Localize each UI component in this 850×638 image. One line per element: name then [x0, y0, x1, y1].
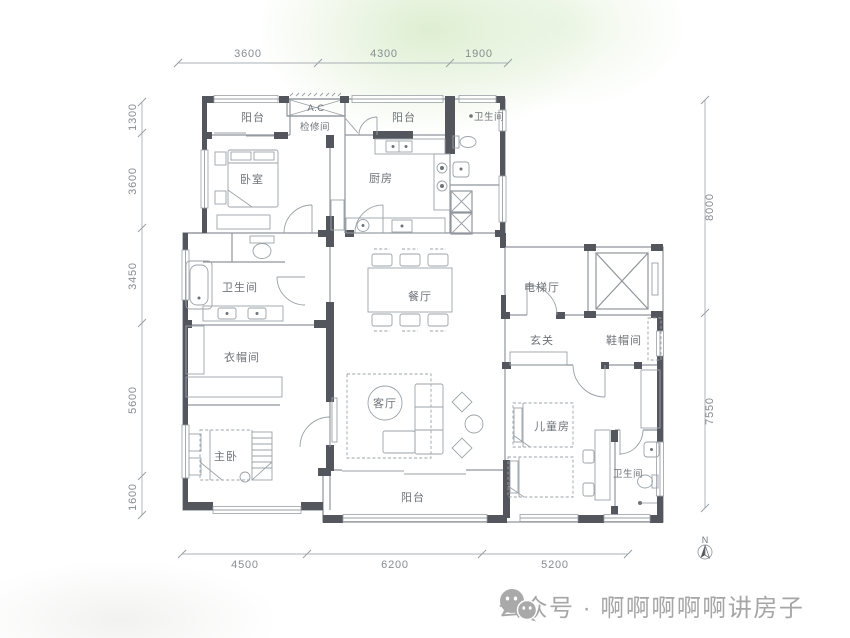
- dim-bottom-2: 6200: [381, 559, 409, 571]
- living-room-furniture: [332, 374, 483, 458]
- duct-shafts: [451, 191, 472, 234]
- dim-bottom-3: 5200: [541, 559, 569, 571]
- dim-top-2: 4300: [370, 48, 398, 60]
- bath-top-fixtures: [453, 114, 476, 177]
- room-label-kids: 儿童房: [534, 419, 570, 433]
- room-label-bath-right: 卫生间: [613, 468, 643, 480]
- dim-left-1: 1300: [127, 103, 139, 131]
- dim-left-5: 1600: [127, 483, 139, 511]
- dim-left-4: 5600: [127, 386, 139, 414]
- room-label-balcony-bottom: 阳台: [401, 490, 425, 504]
- room-label-bath-left: 卫生间: [222, 280, 258, 294]
- room-label-kitchen: 厨房: [369, 172, 393, 185]
- dim-right-1: 8000: [704, 193, 716, 221]
- dim-left-2: 3600: [127, 167, 139, 195]
- room-label-bedroom: 卧室: [240, 172, 264, 186]
- room-label-shoe-room: 鞋帽间: [606, 333, 642, 347]
- room-label-living: 客厅: [373, 396, 397, 410]
- compass-north-label: N: [702, 535, 709, 545]
- room-label-foyer: 玄关: [530, 333, 554, 347]
- room-label-balcony-top-left: 阳台: [241, 110, 265, 124]
- room-label-ac: A.C: [307, 103, 324, 114]
- watermark: 公众号 · 啊啊啊啊啊讲房子: [498, 588, 804, 623]
- kids-room-furniture: [508, 403, 610, 500]
- dim-right-2: 7550: [704, 397, 716, 425]
- dining-table: [368, 249, 452, 331]
- north-arrow-icon: N: [698, 535, 712, 559]
- dim-bottom-1: 4500: [231, 559, 259, 571]
- room-label-bath-top: 卫生间: [474, 111, 504, 123]
- floorplan-drawing: 阳台 检修间 A.C 阳台 卫生间 卧室 厨房 卫生间 餐厅 电梯厅 玄关 鞋帽…: [0, 0, 850, 638]
- dim-top-3: 1900: [465, 48, 493, 60]
- elevator-shaft: [596, 253, 658, 309]
- room-label-cloakroom: 衣帽间: [224, 350, 260, 364]
- wechat-icon: [498, 588, 538, 622]
- room-label-elevator-hall: 电梯厅: [524, 281, 560, 294]
- ac-platform-hatch: [290, 93, 341, 96]
- room-label-master: 主卧: [214, 450, 238, 463]
- dim-left-3: 3450: [127, 262, 139, 290]
- room-label-dining: 餐厅: [408, 289, 432, 303]
- room-label-balcony-top: 阳台: [392, 110, 416, 124]
- floorplan-page: 阳台 检修间 A.C 阳台 卫生间 卧室 厨房 卫生间 餐厅 电梯厅 玄关 鞋帽…: [0, 0, 850, 638]
- dim-top-1: 3600: [234, 48, 262, 60]
- bath-left-fixtures: [186, 236, 283, 321]
- wall-outlines: [183, 99, 663, 522]
- kitchen-counter: [331, 139, 450, 233]
- foyer-cabinet: [510, 352, 567, 365]
- wardrobe-bedroom: [217, 215, 270, 229]
- watermark-text: 公众号 · 啊啊啊啊啊讲房子: [498, 588, 804, 623]
- master-dresser: [252, 432, 272, 480]
- room-label-maintenance: 检修间: [300, 121, 330, 133]
